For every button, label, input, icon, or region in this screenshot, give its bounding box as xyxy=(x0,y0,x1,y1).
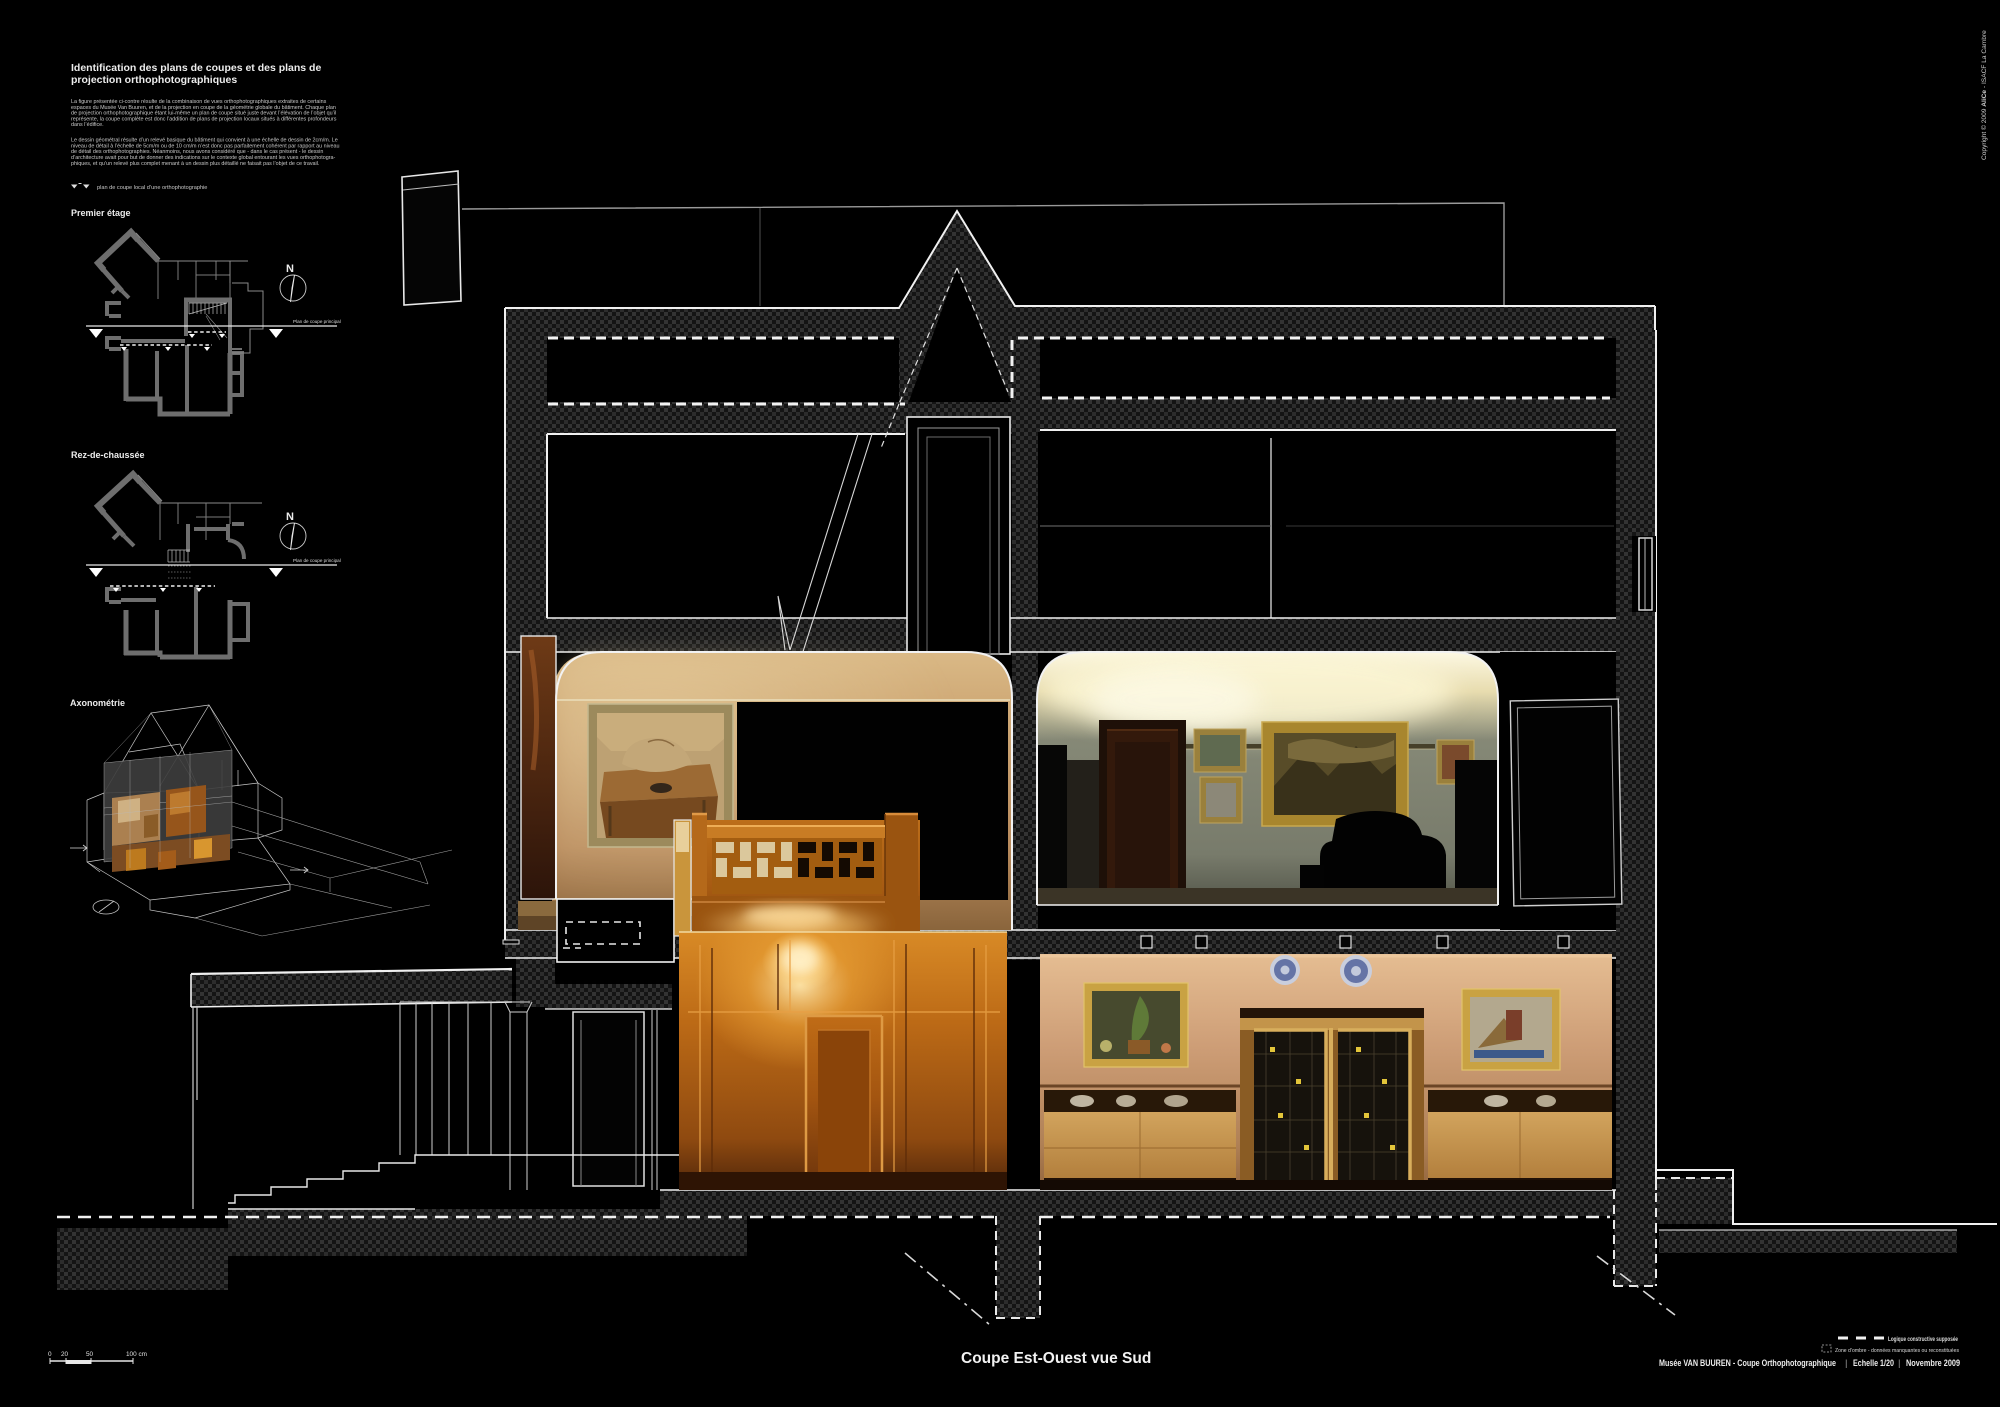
svg-text:Logique constructive supposée: Logique constructive supposée xyxy=(1888,1337,1959,1343)
svg-text:plan de coupe local d’une orth: plan de coupe local d’une orthophotograp… xyxy=(97,185,207,191)
svg-text:Musée VAN BUUREN - Coupe Ortho: Musée VAN BUUREN - Coupe Orthophotograph… xyxy=(1659,1358,1836,1369)
svg-text:dans l’édifice.: dans l’édifice. xyxy=(71,122,104,128)
svg-text:50: 50 xyxy=(86,1351,94,1358)
svg-text:projection orthophotographique: projection orthophotographiques xyxy=(71,74,237,86)
svg-text:0: 0 xyxy=(48,1351,52,1358)
svg-text:|: | xyxy=(1898,1358,1900,1369)
svg-text:Echelle 1/20: Echelle 1/20 xyxy=(1853,1358,1894,1369)
svg-text:Coupe Est-Ouest vue Sud: Coupe Est-Ouest vue Sud xyxy=(961,1350,1151,1367)
svg-text:Copyright © 2009 AliCe - ISACF: Copyright © 2009 AliCe - ISACF La Cambre xyxy=(1980,30,1988,160)
svg-text:100 cm: 100 cm xyxy=(126,1351,147,1358)
svg-text:phiques, et qu’un relevé plus: phiques, et qu’un relevé plus complet me… xyxy=(71,161,319,167)
svg-text:représente, la coupe complète: représente, la coupe complète est donc l… xyxy=(71,116,337,122)
svg-text:Novembre 2009: Novembre 2009 xyxy=(1906,1358,1960,1369)
svg-text:Identification des plans de co: Identification des plans de coupes et de… xyxy=(71,62,321,74)
svg-text:Premier étage: Premier étage xyxy=(71,208,131,218)
svg-text:20: 20 xyxy=(61,1351,69,1358)
svg-text:Plan de coupe principal: Plan de coupe principal xyxy=(293,319,341,324)
svg-text:Axonométrie: Axonométrie xyxy=(70,698,125,708)
svg-text:Plan de coupe principal: Plan de coupe principal xyxy=(293,558,341,563)
svg-text:|: | xyxy=(1845,1358,1847,1369)
svg-text:N: N xyxy=(286,263,294,275)
svg-text:Rez-de-chaussée: Rez-de-chaussée xyxy=(71,450,145,460)
svg-text:N: N xyxy=(286,511,294,523)
svg-text:Zone d’ombre - données manquan: Zone d’ombre - données manquantes ou rec… xyxy=(1835,1348,1959,1354)
